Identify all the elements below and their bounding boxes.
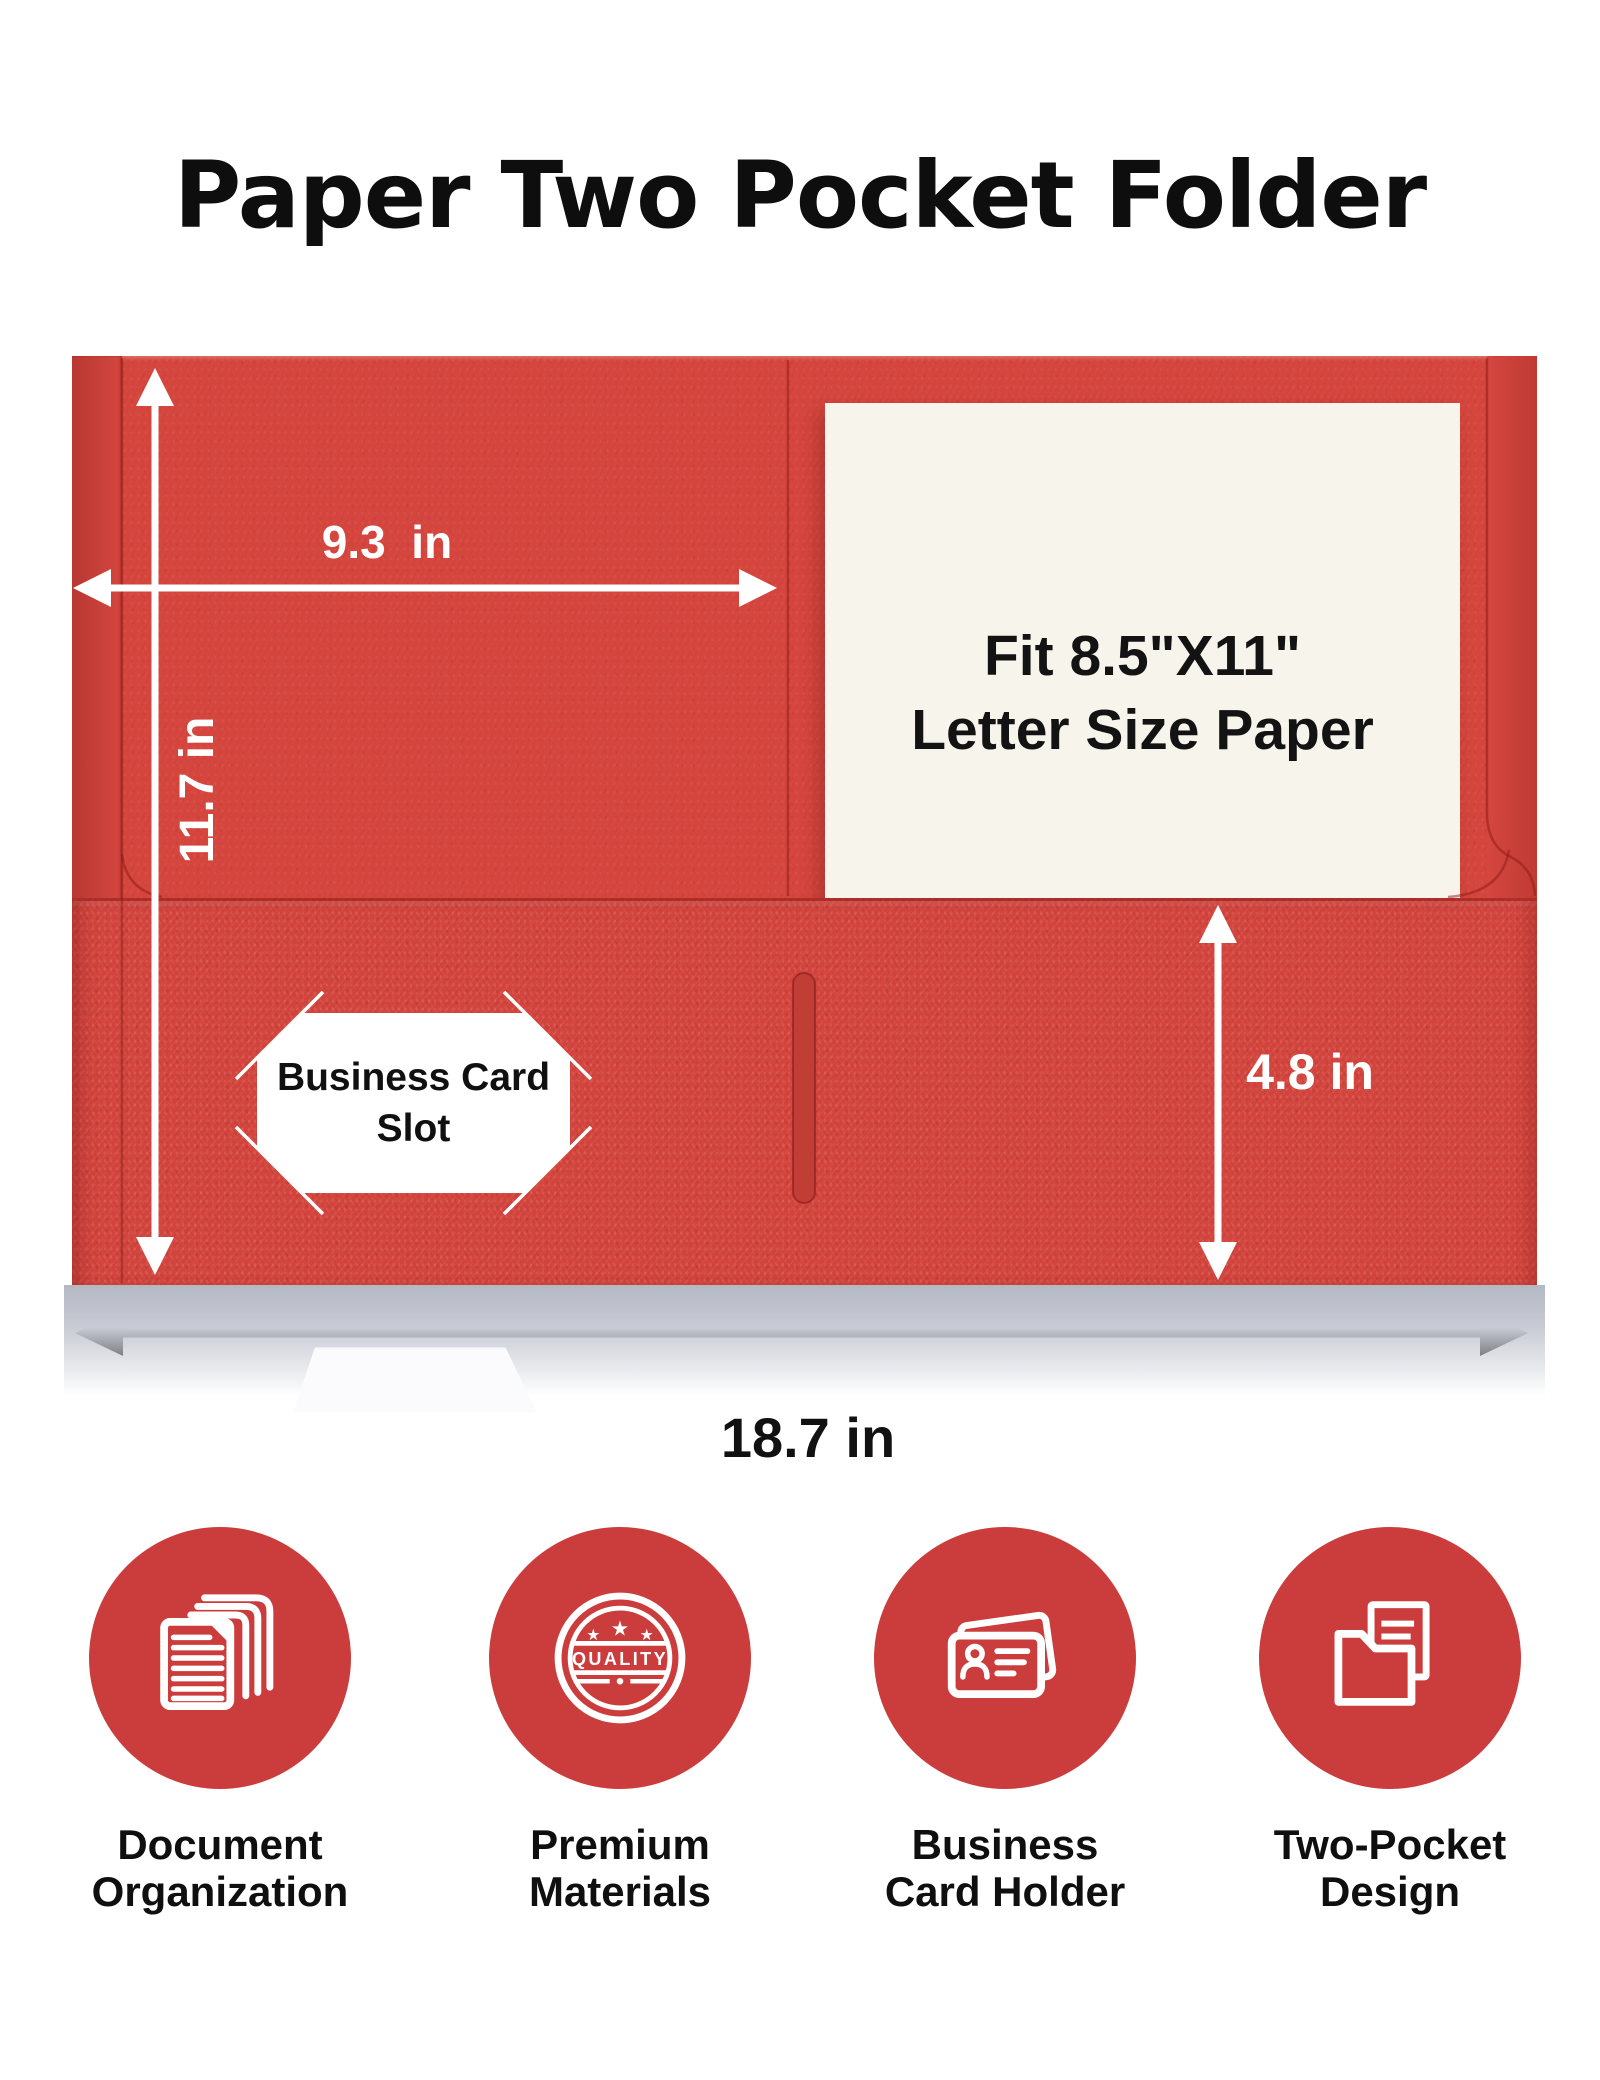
card-slot-line2: Slot — [377, 1103, 451, 1154]
quality-badge-icon: QUALITY ★ ★ ★ — [534, 1572, 706, 1744]
svg-text:★: ★ — [611, 1618, 630, 1641]
feature-label-line1: Business — [885, 1821, 1125, 1868]
panel-width-label: 9.3 in — [237, 515, 537, 569]
feature-label-line2: Organization — [92, 1868, 349, 1915]
folder-drop-shadow — [64, 1285, 1545, 1397]
feature-business-card-holder: Business Card Holder — [835, 1527, 1175, 1915]
svg-text:★: ★ — [586, 1627, 600, 1644]
business-card-icon — [919, 1572, 1091, 1744]
stacked-documents-icon — [134, 1572, 306, 1744]
feature-circle: QUALITY ★ ★ ★ — [489, 1527, 751, 1789]
feature-document-organization: Document Organization — [50, 1527, 390, 1915]
quality-badge-text: QUALITY — [572, 1649, 668, 1669]
feature-label-line2: Materials — [529, 1868, 711, 1915]
feature-label: Premium Materials — [529, 1821, 711, 1915]
svg-text:★: ★ — [640, 1627, 654, 1644]
letter-paper-insert: Fit 8.5"X11" Letter Size Paper — [825, 403, 1460, 903]
feature-label-line2: Card Holder — [885, 1868, 1125, 1915]
feature-label-line1: Two-Pocket — [1274, 1821, 1507, 1868]
feature-premium-materials: QUALITY ★ ★ ★ Premium Materials — [450, 1527, 790, 1915]
feature-circle — [874, 1527, 1136, 1789]
total-width-label: 18.7 in — [608, 1405, 1008, 1470]
card-slot-line1: Business Card — [277, 1052, 550, 1103]
feature-circle — [1259, 1527, 1521, 1789]
feature-label-line1: Document — [92, 1821, 349, 1868]
paper-insert-line2: Letter Size Paper — [825, 693, 1460, 767]
paper-insert-line1: Fit 8.5"X11" — [825, 619, 1460, 693]
paper-insert-text: Fit 8.5"X11" Letter Size Paper — [825, 619, 1460, 767]
folder-shadow-notch — [293, 1347, 537, 1413]
two-pocket-folder-icon — [1304, 1572, 1476, 1744]
feature-label-line2: Design — [1274, 1868, 1507, 1915]
page-title: Paper Two Pocket Folder — [0, 148, 1600, 245]
feature-circle — [89, 1527, 351, 1789]
feature-two-pocket-design: Two-Pocket Design — [1220, 1527, 1560, 1915]
folder-height-label: 11.7 in — [170, 690, 230, 890]
feature-label: Two-Pocket Design — [1274, 1821, 1507, 1915]
feature-label-line1: Premium — [529, 1821, 711, 1868]
pocket-height-label: 4.8 in — [1160, 1043, 1460, 1101]
business-card-slot-label: Business Card Slot — [257, 1013, 570, 1193]
feature-label: Business Card Holder — [885, 1821, 1125, 1915]
feature-label: Document Organization — [92, 1821, 349, 1915]
